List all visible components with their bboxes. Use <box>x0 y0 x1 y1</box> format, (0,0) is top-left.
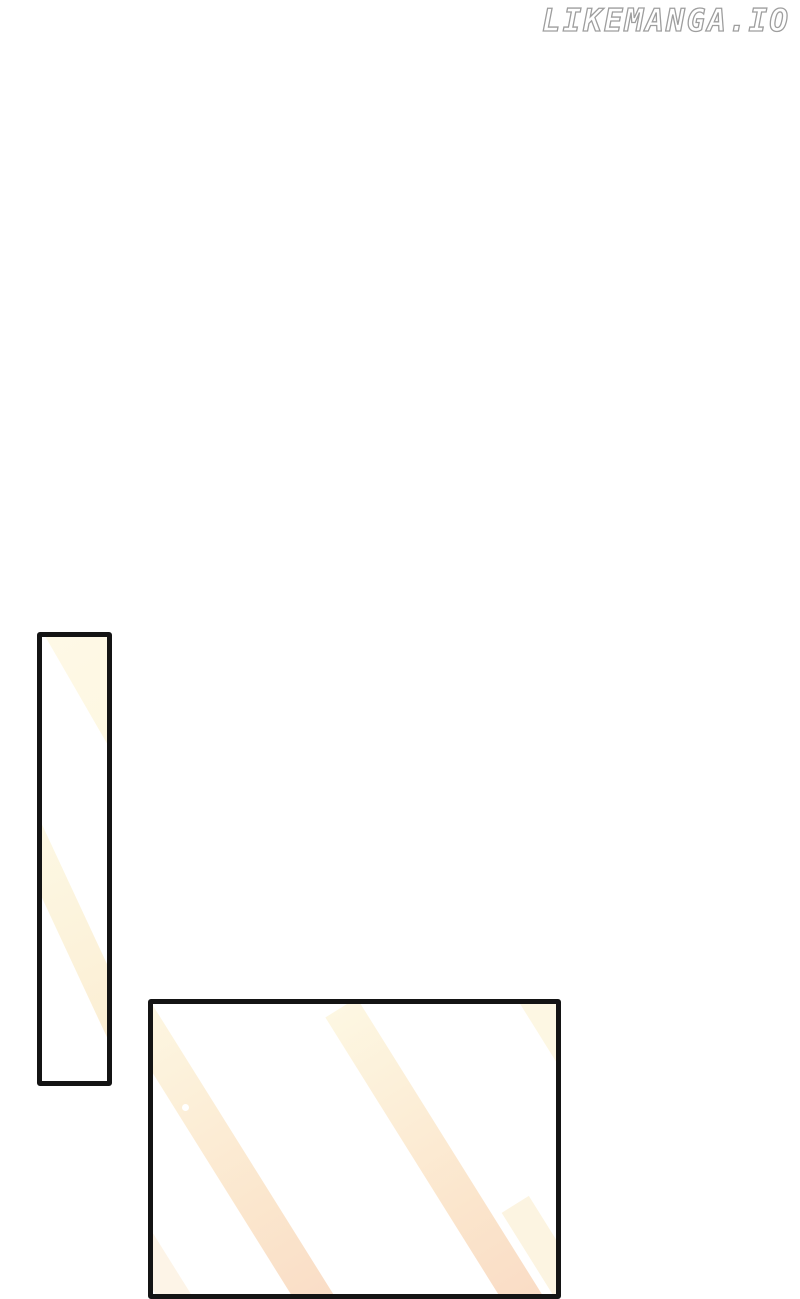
manga-panel-large-inner <box>153 1004 556 1294</box>
manga-panel-vertical-inner <box>42 637 107 1081</box>
speedline-middle-band <box>42 821 107 1043</box>
manga-panel-vertical <box>37 632 112 1086</box>
speedline-stripe-right <box>325 1004 556 1294</box>
speedline-stripe-top-right <box>489 1004 556 1098</box>
manga-panel-large <box>148 999 561 1299</box>
speedline-stripe-bottom-left <box>153 1234 206 1294</box>
speedline-stripe-left <box>153 1004 376 1294</box>
white-dot-highlight <box>182 1104 189 1111</box>
speedline-corner-band <box>42 637 107 821</box>
site-watermark: LIKEMANGA.IO <box>542 3 790 39</box>
